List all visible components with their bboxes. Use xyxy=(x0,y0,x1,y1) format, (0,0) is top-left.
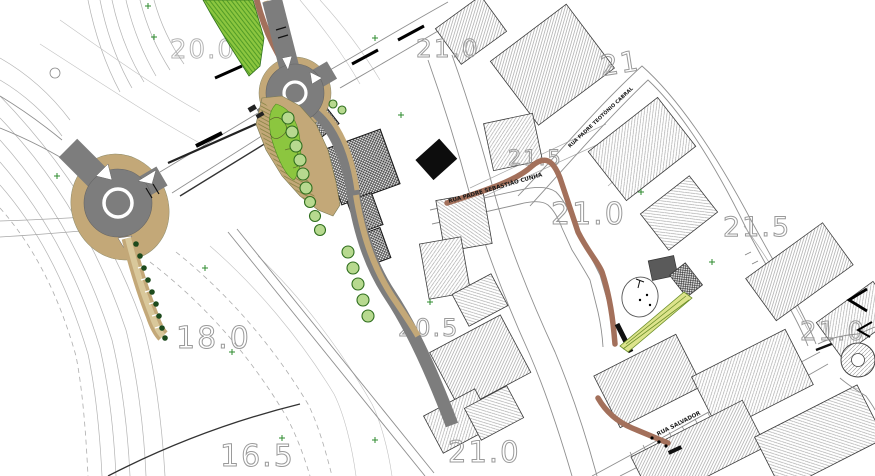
buildings-hatched xyxy=(419,0,875,476)
elevation-label-10: 21.0 xyxy=(800,317,866,347)
elevation-label-1: 21.0 xyxy=(416,34,480,63)
elevation-label-9: 21.0 xyxy=(448,435,521,469)
building-solid-black xyxy=(415,139,457,180)
elevation-label-2: 21 xyxy=(598,44,642,83)
survey-circle-symbol xyxy=(50,68,60,78)
site-plan-canvas: 20.0 21.0 21 21.5 21.0 21.5 20.5 18.0 16… xyxy=(0,0,875,476)
roundabout-west xyxy=(54,138,187,276)
elevation-label-8: 16.5 xyxy=(220,439,295,474)
elevation-label-4: 21.0 xyxy=(551,197,626,232)
elevation-label-5: 21.5 xyxy=(723,212,791,243)
stripe-crossing xyxy=(620,292,692,352)
site-plan-page: 20.0 21.0 21 21.5 21.0 21.5 20.5 18.0 16… xyxy=(0,0,875,476)
elevation-label-7: 18.0 xyxy=(176,321,251,356)
sketch-roundabout-circle xyxy=(619,274,661,320)
